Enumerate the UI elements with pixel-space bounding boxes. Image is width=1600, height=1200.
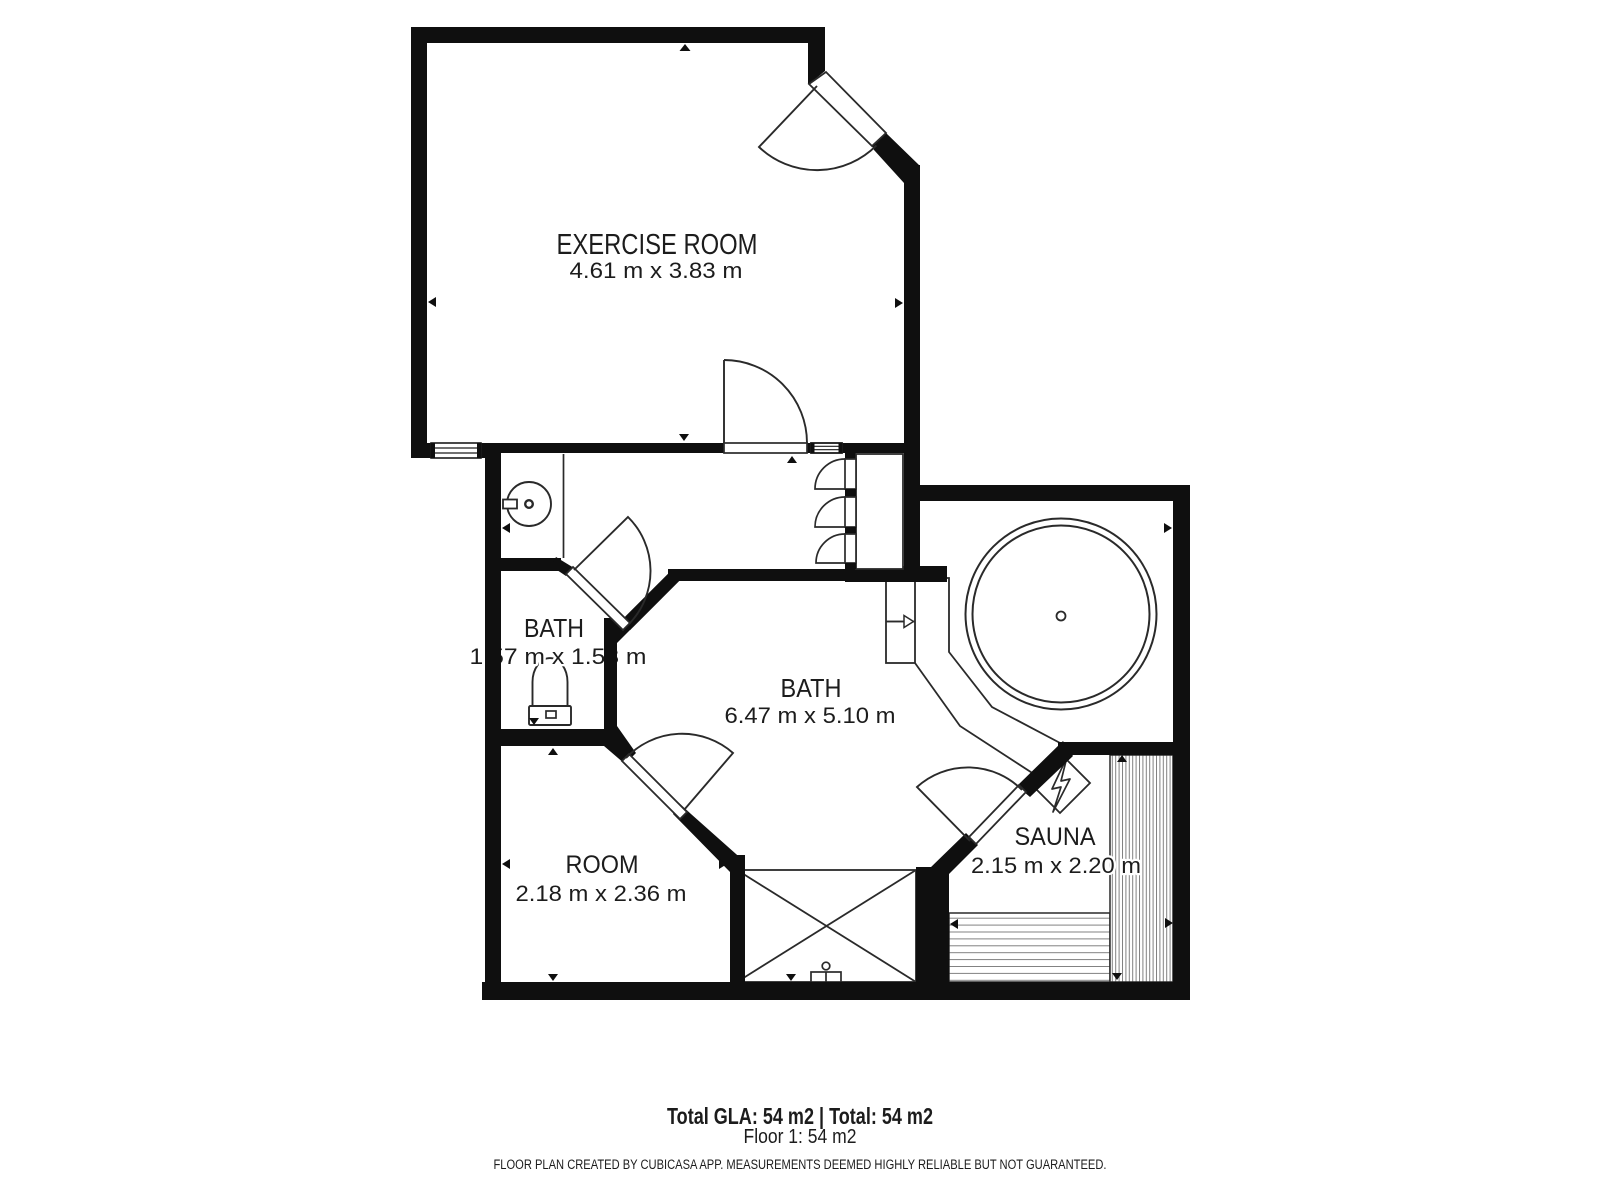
- svg-text:FLOOR PLAN CREATED BY CUBICASA: FLOOR PLAN CREATED BY CUBICASA APP. MEAS…: [494, 1157, 1107, 1172]
- svg-text:2.15 m x 2.20 m: 2.15 m x 2.20 m: [971, 853, 1141, 878]
- svg-text:6.47 m x 5.10 m: 6.47 m x 5.10 m: [725, 703, 896, 728]
- svg-text:ROOM: ROOM: [566, 851, 639, 879]
- svg-text:EXERCISE ROOM: EXERCISE ROOM: [557, 229, 758, 261]
- svg-text:BATH: BATH: [524, 613, 584, 643]
- svg-text:2.18 m x 2.36 m: 2.18 m x 2.36 m: [516, 881, 687, 906]
- svg-text:Floor 1: 54 m2: Floor 1: 54 m2: [744, 1126, 857, 1148]
- svg-text:4.61 m x 3.83 m: 4.61 m x 3.83 m: [570, 258, 743, 283]
- svg-text:SAUNA: SAUNA: [1015, 823, 1096, 851]
- svg-text:BATH: BATH: [781, 673, 842, 703]
